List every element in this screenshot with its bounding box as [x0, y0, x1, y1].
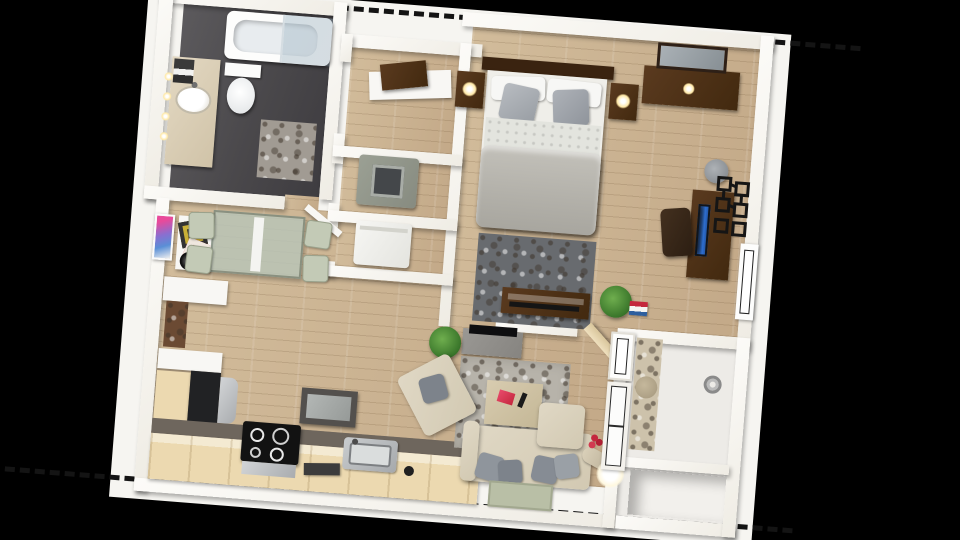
- book-stack: [629, 301, 648, 316]
- render-stage: [0, 0, 960, 540]
- door-mat: [487, 480, 553, 511]
- refrigerator-steel-front: [217, 377, 239, 424]
- dresser-mirror: [656, 42, 728, 73]
- kitchen-backsplash: [163, 300, 189, 348]
- dining-chair: [188, 212, 214, 239]
- wall-tv-screen: [306, 394, 352, 421]
- bed-duvet: [475, 145, 601, 236]
- sink-basin: [348, 442, 392, 467]
- storage-box: [380, 60, 428, 90]
- shower-glass-screen: [280, 15, 334, 67]
- sofa-high-back: [536, 402, 585, 449]
- refrigerator: [187, 371, 221, 425]
- storage-nook: [627, 469, 726, 521]
- dining-chair: [303, 219, 333, 250]
- geometric-wall-art: [711, 173, 752, 238]
- counter-tray: [304, 463, 340, 475]
- dining-wall-art: [152, 213, 176, 260]
- dining-chair: [302, 255, 329, 283]
- bed-accent-pillow: [552, 89, 589, 126]
- kitchen-corner-cabinet: [153, 370, 191, 423]
- sofa-pillow: [553, 453, 580, 480]
- towel-stack: [173, 58, 195, 83]
- washer-lid: [370, 164, 404, 198]
- dining-chair: [184, 244, 213, 274]
- wall-closet-left-a: [340, 33, 353, 62]
- desk-chair: [660, 207, 693, 257]
- toilet-tank: [224, 62, 261, 78]
- coffee-table: [484, 380, 543, 428]
- floor-plan: [133, 2, 770, 540]
- bath-mat: [257, 119, 317, 181]
